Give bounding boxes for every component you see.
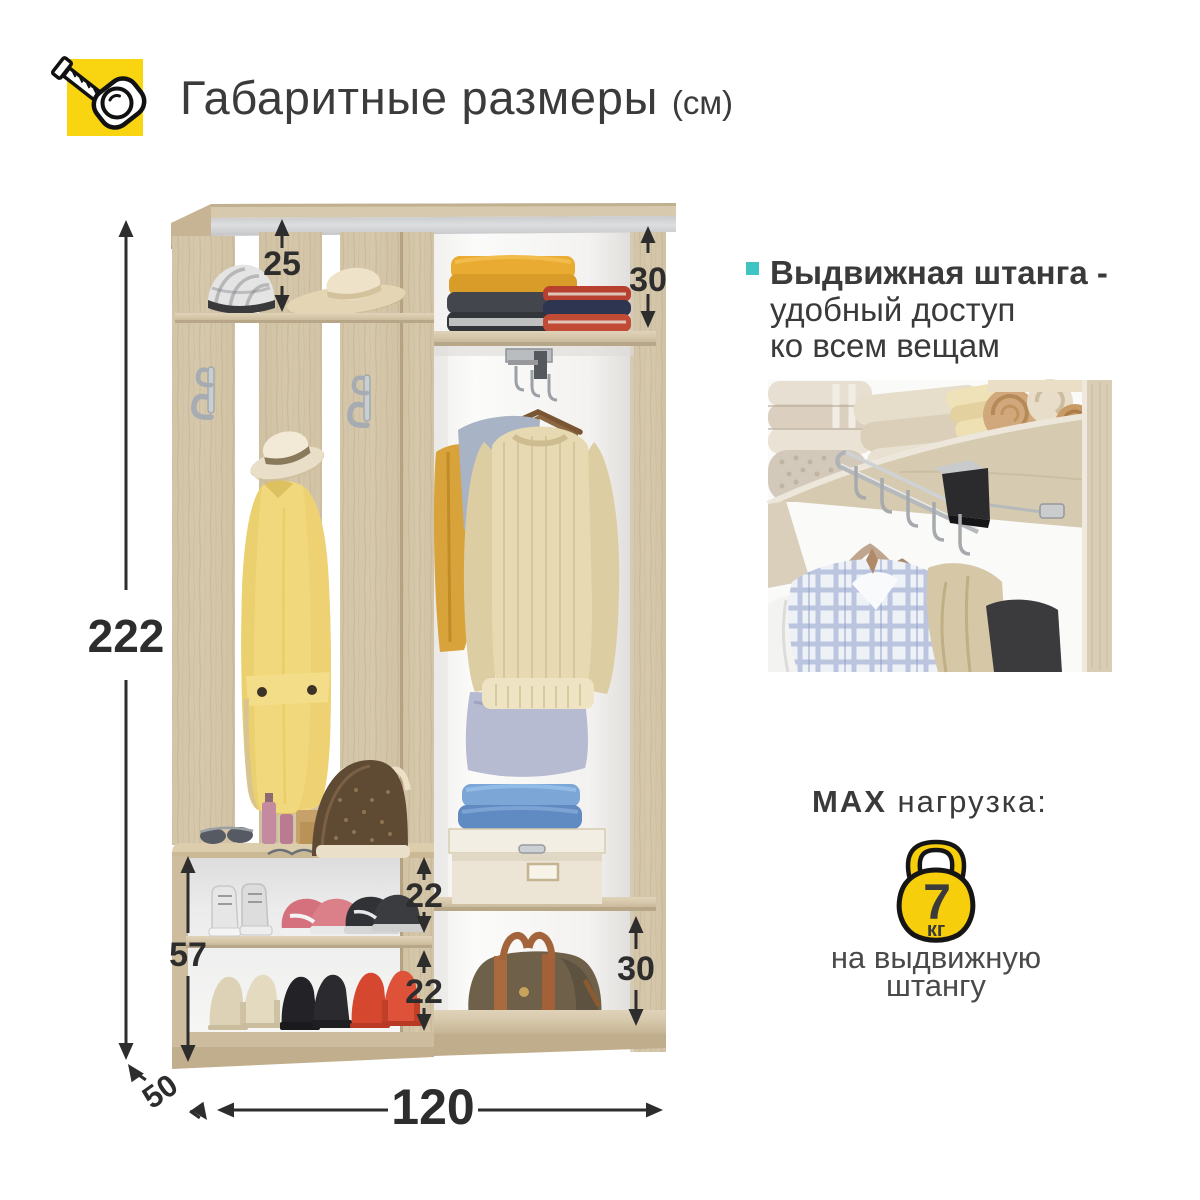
svg-text:30: 30	[629, 261, 667, 299]
svg-text:MAX нагрузка:: MAX нагрузка:	[812, 784, 1048, 819]
svg-text:22: 22	[405, 877, 443, 915]
svg-text:222: 222	[88, 610, 165, 662]
svg-text:57: 57	[169, 936, 207, 974]
svg-text:120: 120	[391, 1079, 474, 1135]
svg-text:штангу: штангу	[886, 968, 986, 1003]
svg-text:30: 30	[617, 950, 655, 988]
svg-text:кг: кг	[927, 919, 945, 941]
svg-text:Габаритные размеры (см): Габаритные размеры (см)	[180, 71, 733, 124]
svg-text:удобный доступ: удобный доступ	[770, 291, 1015, 328]
svg-text:ко всем вещам: ко всем вещам	[770, 327, 1000, 364]
svg-text:Выдвижная штанга -: Выдвижная штанга -	[770, 254, 1108, 291]
svg-text:25: 25	[263, 245, 301, 283]
svg-text:22: 22	[405, 973, 443, 1011]
